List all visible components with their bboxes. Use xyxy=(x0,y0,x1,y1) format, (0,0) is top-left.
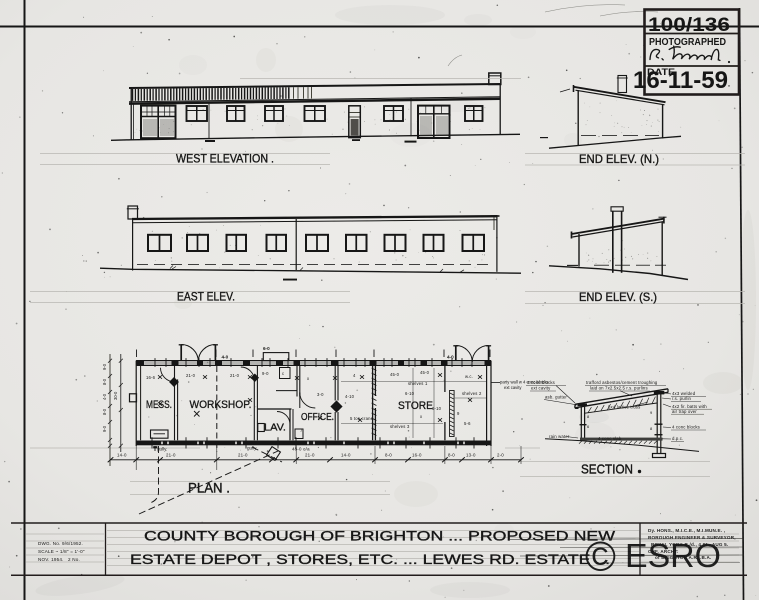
svg-text:45-0: 45-0 xyxy=(420,370,430,375)
svg-text:w.c.: w.c. xyxy=(465,374,473,379)
svg-text:WORKSHOP.: WORKSHOP. xyxy=(190,399,252,411)
svg-text:©: © xyxy=(585,533,616,580)
svg-text:4 conc slab: 4 conc slab xyxy=(598,436,622,441)
svg-text:100/136: 100/136 xyxy=(648,14,730,36)
svg-text:9-0: 9-0 xyxy=(102,425,107,432)
svg-text:ESTATE DEPOT , STORES, ETC.: ESTATE DEPOT , STORES, ETC. ... LEWES RD… xyxy=(130,551,610,567)
svg-text:laid on 7x2.5x2.5 r.s. purlins: laid on 7x2.5x2.5 r.s. purlins xyxy=(590,386,648,391)
svg-text:SCALE ~ 1/8" = 1'-0": SCALE ~ 1/8" = 1'-0" xyxy=(38,549,85,554)
svg-text:21-0: 21-0 xyxy=(186,373,196,378)
svg-text:48-0 o/a: 48-0 o/a xyxy=(292,447,310,452)
svg-text:2-0: 2-0 xyxy=(497,453,504,458)
svg-text:8-0: 8-0 xyxy=(102,378,107,385)
svg-text:SECTION: SECTION xyxy=(581,462,633,477)
svg-text:WEST ELEVATION .: WEST ELEVATION . xyxy=(176,152,274,166)
svg-text:14-0: 14-0 xyxy=(117,453,127,458)
svg-text:16-11-59: 16-11-59 xyxy=(633,67,728,94)
svg-text:4-0: 4-0 xyxy=(222,355,229,360)
svg-text:6-10: 6-10 xyxy=(432,406,442,411)
svg-text:4-0: 4-0 xyxy=(447,355,454,360)
svg-text:asb. gutter: asb. gutter xyxy=(545,395,567,400)
svg-text:30-0: 30-0 xyxy=(113,391,118,400)
svg-text:4 conc blocks: 4 conc blocks xyxy=(672,425,700,430)
svg-text:rain water: rain water xyxy=(549,434,570,439)
svg-text:EAST ELEV.: EAST ELEV. xyxy=(177,290,235,304)
svg-text:shelves 2: shelves 2 xyxy=(462,391,482,396)
svg-text:21-0: 21-0 xyxy=(230,373,240,378)
svg-text:8-0: 8-0 xyxy=(102,408,107,415)
svg-text:gully: gully xyxy=(247,446,257,451)
svg-text:6-10: 6-10 xyxy=(405,391,415,396)
svg-text:OFFICE.: OFFICE. xyxy=(301,411,334,423)
svg-text:END ELEV. (N.): END ELEV. (N.) xyxy=(579,152,659,166)
svg-text:END ELEV. (S.): END ELEV. (S.) xyxy=(579,290,657,304)
svg-text:LAV.: LAV. xyxy=(264,422,286,434)
svg-text:13-0: 13-0 xyxy=(466,453,476,458)
svg-text:4-10: 4-10 xyxy=(345,394,355,399)
svg-text:shelves 3: shelves 3 xyxy=(390,424,410,429)
svg-text:45-0: 45-0 xyxy=(390,372,400,377)
svg-text:21-0: 21-0 xyxy=(238,453,248,458)
svg-text:shelves 1: shelves 1 xyxy=(408,381,428,386)
svg-text:8-0: 8-0 xyxy=(385,453,392,458)
svg-text:r.s. purlin: r.s. purlin xyxy=(672,396,692,401)
svg-text:Dy. HONS., M.I.C.E., M.I.MUN.E: Dy. HONS., M.I.C.E., M.I.MUN.E. , xyxy=(648,528,725,533)
svg-text:4-0: 4-0 xyxy=(102,393,107,400)
svg-text:21-0: 21-0 xyxy=(166,453,176,458)
svg-text:trafford asbestos/cement troug: trafford asbestos/cement troughing xyxy=(586,380,658,385)
svg-text:9-0: 9-0 xyxy=(102,363,107,370)
svg-text:16-6: 16-6 xyxy=(146,375,156,380)
svg-text:ext cavity: ext cavity xyxy=(531,386,551,391)
svg-text:air trap over: air trap over xyxy=(672,409,697,414)
svg-text:5-6: 5-6 xyxy=(464,421,471,426)
svg-text:4 conc blocks: 4 conc blocks xyxy=(527,380,555,385)
svg-text:3-0: 3-0 xyxy=(317,392,324,397)
svg-text:STORE: STORE xyxy=(398,400,433,412)
svg-text:ext cavity: ext cavity xyxy=(504,385,522,390)
svg-text:21-0: 21-0 xyxy=(305,453,315,458)
svg-text:DWG. No. 9/6/1952.: DWG. No. 9/6/1952. xyxy=(38,541,83,546)
svg-text:16-0: 16-0 xyxy=(412,453,422,458)
svg-text:c: c xyxy=(282,371,284,376)
svg-text:d.p.c.: d.p.c. xyxy=(672,436,683,441)
svg-text:PLAN .: PLAN . xyxy=(188,480,230,496)
svg-text:6-0: 6-0 xyxy=(263,346,270,351)
svg-text:PHOTOGRAPHED: PHOTOGRAPHED xyxy=(649,37,726,48)
svg-text:9-0: 9-0 xyxy=(262,371,269,376)
svg-text:COUNTY BOROUGH OF BRIGHTON: COUNTY BOROUGH OF BRIGHTON ... PROPOSED … xyxy=(144,528,616,544)
svg-text:8-0: 8-0 xyxy=(448,453,455,458)
svg-text:NOV. 1954. 2 No.: NOV. 1954. 2 No. xyxy=(38,557,80,562)
svg-text:ESRO: ESRO xyxy=(625,537,721,574)
svg-text:14-0: 14-0 xyxy=(341,453,351,458)
